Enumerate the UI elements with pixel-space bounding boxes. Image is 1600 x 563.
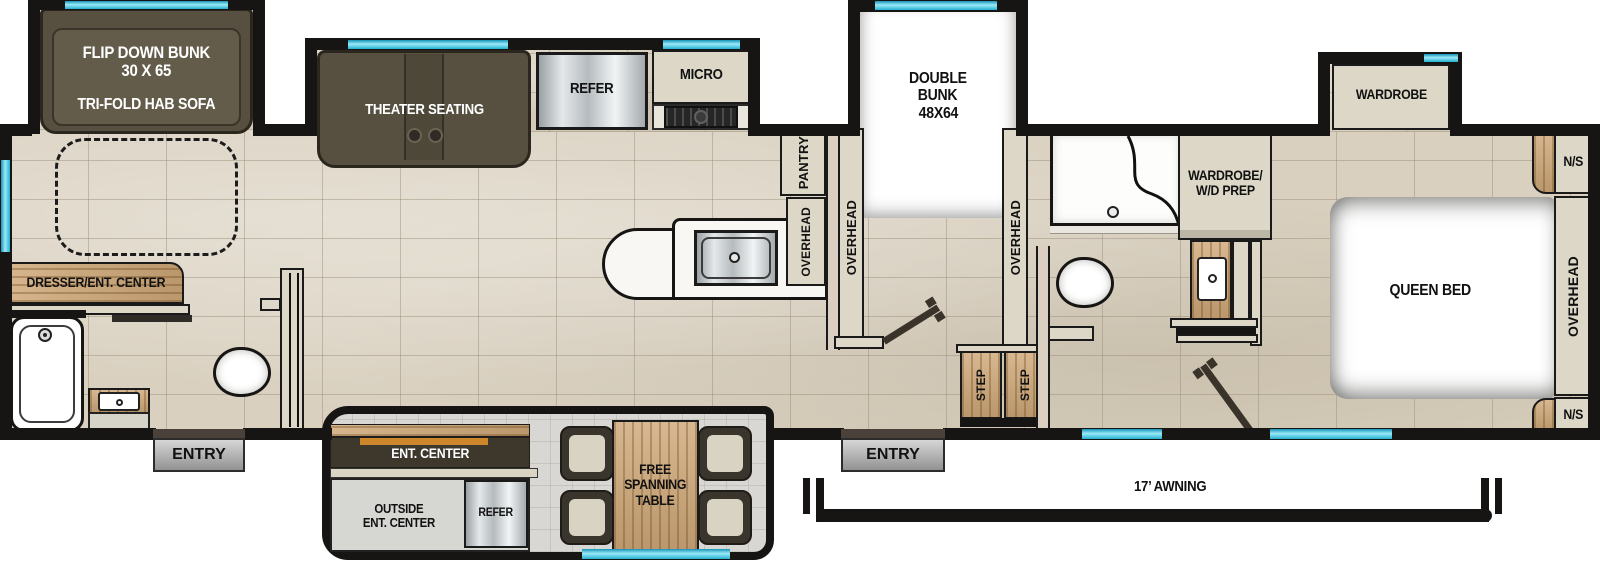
- kitchen-overhead-label: OVERHEAD: [786, 197, 826, 286]
- entry-door-rear: ENTRY: [153, 438, 245, 472]
- cupholder-icon: [428, 128, 443, 143]
- wall-segment: [243, 428, 332, 440]
- slide-wall: [1318, 52, 1330, 136]
- chair-cushion: [569, 435, 605, 472]
- entry-threshold: [153, 429, 245, 438]
- cupholder-icon: [407, 128, 422, 143]
- window: [1270, 429, 1392, 439]
- free-spanning-table-label: FREE SPANNING TABLE: [612, 452, 699, 518]
- chair-cushion: [707, 499, 743, 536]
- bath-faucet-icon: [1208, 274, 1217, 283]
- pocket-door-icon: [289, 273, 299, 427]
- chair-cushion: [569, 499, 605, 536]
- wall-shelf: [260, 298, 281, 311]
- microwave-label: MICRO: [652, 64, 750, 86]
- awning-bracket: [1495, 478, 1502, 514]
- awning-label: 17’ AWNING: [1108, 477, 1232, 497]
- dining-chair: [560, 490, 614, 545]
- slide-wall: [253, 0, 265, 134]
- bedroom-step: [1170, 318, 1258, 328]
- entry-threshold: [841, 429, 945, 438]
- ent-center-shelf: [330, 468, 538, 478]
- step-shadow: [960, 418, 1046, 427]
- bedroom-overhead-label: OVERHEAD: [1554, 196, 1592, 396]
- nightstand-top-label: N/S: [1554, 130, 1592, 194]
- bunk-overhead-right-label: OVERHEAD: [1002, 128, 1028, 347]
- window: [582, 549, 730, 559]
- wall-segment: [943, 428, 1595, 440]
- bath-bedroom-wall: [1036, 246, 1050, 434]
- slide-wall: [305, 38, 317, 136]
- ent-center-top: [330, 424, 530, 437]
- toilet: [1056, 257, 1114, 308]
- awning-bracket: [1481, 478, 1489, 522]
- front-wall: [1588, 124, 1600, 440]
- rear-faucet-icon: [116, 399, 123, 406]
- ent-center-label: ENT. CENTER: [330, 443, 530, 465]
- slide-wall: [748, 38, 760, 136]
- awning-bracket: [803, 478, 810, 514]
- flip-down-bunk-footprint-outline: [55, 138, 238, 256]
- wall-segment: [1016, 124, 1330, 136]
- bedroom-corner-wood-bottom: [1532, 398, 1556, 432]
- shower-drain-icon: [1107, 206, 1119, 218]
- bath-vanity-side: [1232, 240, 1250, 320]
- outside-refrigerator-label: REFER: [464, 502, 528, 522]
- window: [875, 1, 997, 10]
- window: [348, 40, 508, 49]
- double-bunk-label: DOUBLE BUNK 48X64: [860, 62, 1016, 130]
- window: [65, 1, 228, 9]
- dining-chair: [698, 490, 752, 545]
- shower-threshold: [1050, 226, 1180, 234]
- bunk-overhead-left-label: OVERHEAD: [838, 128, 864, 347]
- rv-floorplan: FLIP DOWN BUNK 30 X 65 TRI-FOLD HAB SOFA…: [0, 0, 1600, 563]
- chair-cushion: [707, 435, 743, 472]
- bathtub-drain-dot: [43, 333, 47, 337]
- cooktop-burner-icon: [694, 110, 708, 124]
- bedroom-step: [1176, 334, 1258, 343]
- dining-chair: [698, 426, 752, 481]
- wall-segment: [772, 428, 844, 440]
- bunk-cabinet-endcap: [834, 336, 884, 349]
- tri-fold-sofa-label: TRI-FOLD HAB SOFA: [48, 94, 245, 116]
- window: [663, 40, 740, 49]
- wall-segment: [0, 428, 156, 440]
- toilet: [213, 347, 271, 397]
- tv-strip-icon: [112, 315, 192, 322]
- refrigerator-label: REFER: [536, 78, 648, 100]
- flip-down-bunk-label: FLIP DOWN BUNK 30 X 65: [48, 38, 245, 86]
- outside-ent-center-label: OUTSIDE ENT. CENTER: [334, 496, 464, 536]
- wardrobe-label: WARDROBE: [1332, 64, 1450, 126]
- kitchen-faucet-icon: [729, 252, 740, 263]
- toilet-privacy-wall: [1048, 326, 1094, 341]
- window: [1, 160, 10, 252]
- entry-door-main: ENTRY: [841, 438, 945, 472]
- window: [1082, 429, 1162, 439]
- theater-seating-label: THEATER SEATING: [320, 98, 528, 122]
- slide-wall: [848, 0, 860, 134]
- slide-wall: [1016, 0, 1028, 134]
- slide-wall: [28, 0, 40, 134]
- pocket-door-wall: [280, 268, 304, 432]
- dining-chair: [560, 426, 614, 481]
- step-left-label: STEP: [960, 351, 1002, 419]
- pantry-label: PANTRY: [780, 130, 826, 196]
- queen-bed-label: QUEEN BED: [1340, 280, 1520, 302]
- nightstand-bottom-label: N/S: [1554, 397, 1592, 432]
- wall-segment: [1450, 124, 1600, 136]
- awning-bar: [816, 509, 1492, 522]
- wall-segment: [748, 124, 860, 136]
- slide-wall: [1450, 52, 1462, 136]
- dresser-ent-center-label: DRESSER/ENT. CENTER: [8, 262, 184, 304]
- wardrobe-wd-prep-shadow: [1180, 230, 1270, 238]
- wardrobe-wd-prep-label: WARDROBE/ W/D PREP: [1178, 162, 1272, 204]
- bedroom-corner-wood-top: [1532, 130, 1556, 194]
- window: [1424, 54, 1458, 62]
